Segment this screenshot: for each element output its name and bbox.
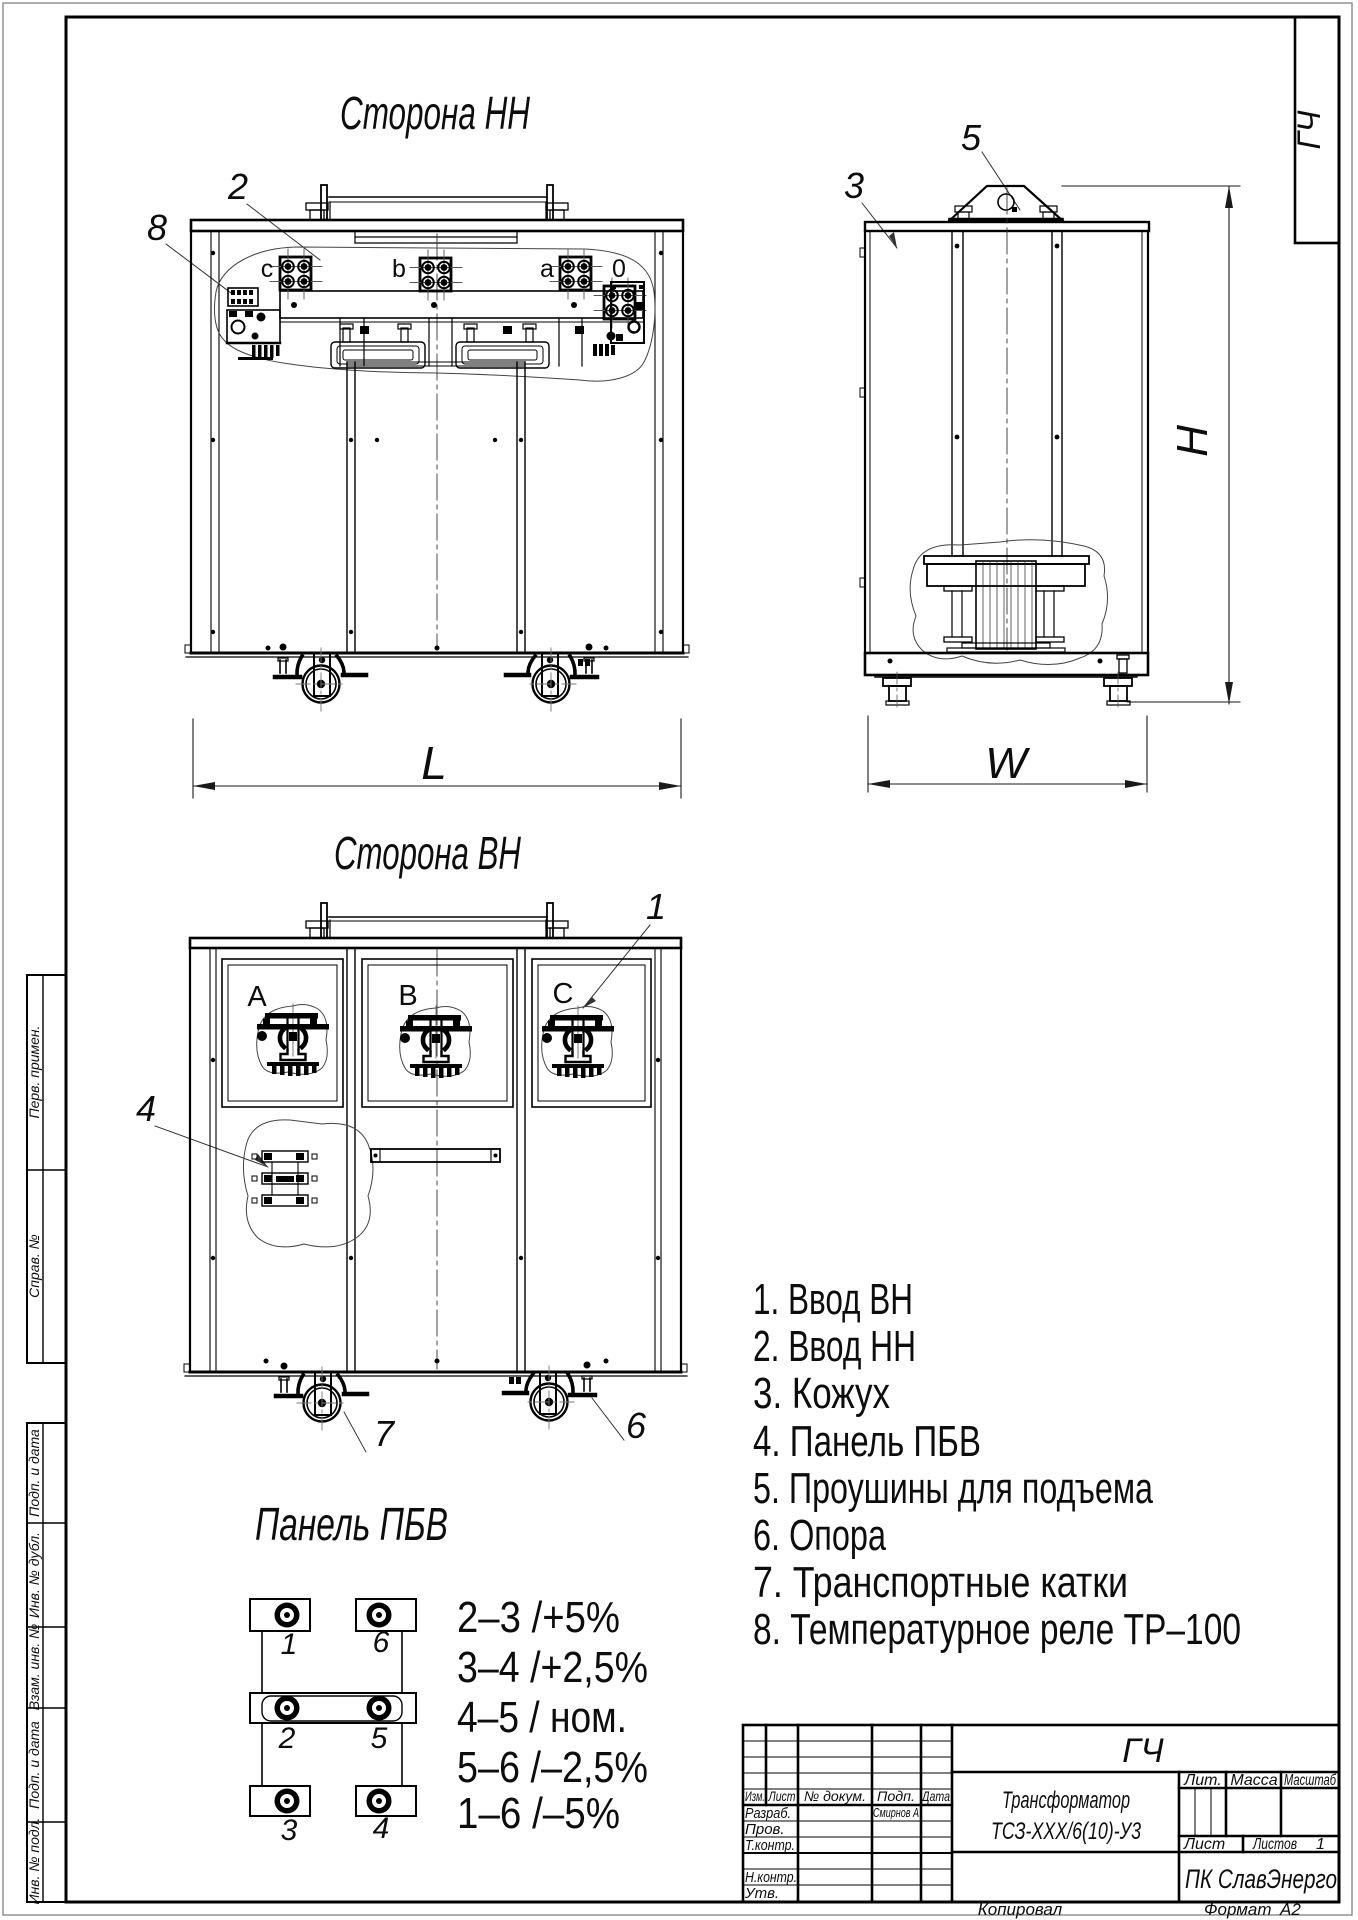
svg-text:Масса: Масса — [1230, 1772, 1277, 1789]
svg-text:Подп. и дата: Подп. и дата — [26, 1429, 42, 1517]
svg-text:Сторона НН: Сторона НН — [340, 87, 531, 139]
svg-text:3: 3 — [844, 165, 864, 206]
svg-text:Копировал: Копировал — [978, 1900, 1063, 1919]
svg-text:1: 1 — [281, 1628, 298, 1661]
svg-text:7. Транспортные катки: 7. Транспортные катки — [753, 1558, 1128, 1607]
svg-text:L: L — [421, 737, 447, 789]
svg-text:2–3 /+5%: 2–3 /+5% — [457, 1593, 620, 1642]
svg-text:2: 2 — [278, 1722, 296, 1755]
svg-text:2. Ввод НН: 2. Ввод НН — [753, 1322, 916, 1371]
svg-text:Пров.: Пров. — [745, 1821, 785, 1838]
svg-text:3. Кожух: 3. Кожух — [753, 1369, 890, 1418]
svg-text:Утв.: Утв. — [744, 1885, 779, 1902]
svg-text:A: A — [247, 981, 267, 1013]
svg-text:Т.контр.: Т.контр. — [745, 1837, 795, 1854]
svg-text:4–5 / ном.: 4–5 / ном. — [457, 1693, 627, 1742]
svg-text:Инв. № подл.: Инв. № подл. — [26, 1818, 42, 1905]
svg-text:Инв. № дубл.: Инв. № дубл. — [26, 1532, 42, 1618]
svg-text:Лист: Лист — [768, 1788, 796, 1804]
svg-text:5–6 /–2,5%: 5–6 /–2,5% — [457, 1743, 648, 1792]
svg-text:Перв. примен.: Перв. примен. — [26, 1025, 42, 1118]
svg-text:Формат: Формат — [1204, 1900, 1272, 1919]
svg-text:1–6 /–5%: 1–6 /–5% — [457, 1789, 620, 1838]
svg-text:c: c — [261, 255, 274, 283]
svg-text:B: B — [398, 980, 417, 1012]
svg-text:2: 2 — [227, 166, 248, 207]
svg-text:b: b — [392, 255, 406, 283]
svg-text:1. Ввод ВН: 1. Ввод ВН — [753, 1275, 913, 1324]
svg-text:Сторона ВН: Сторона ВН — [334, 827, 522, 879]
svg-text:8: 8 — [147, 207, 167, 248]
svg-text:Масштаб: Масштаб — [1284, 1772, 1337, 1789]
svg-text:ГЧ: ГЧ — [1122, 1732, 1163, 1770]
svg-text:1: 1 — [1316, 1836, 1325, 1853]
svg-text:4. Панель ПБВ: 4. Панель ПБВ — [753, 1417, 981, 1466]
svg-text:4: 4 — [136, 1088, 156, 1129]
svg-text:6: 6 — [626, 1405, 647, 1446]
svg-text:ТСЗ-ХХХ/6(10)-У3: ТСЗ-ХХХ/6(10)-У3 — [991, 1818, 1141, 1845]
svg-text:Изм.: Изм. — [745, 1788, 765, 1804]
svg-text:3–4 /+2,5%: 3–4 /+2,5% — [457, 1643, 648, 1692]
svg-text:№ докум.: № докум. — [804, 1788, 866, 1804]
svg-text:8. Температурное реле ТР–100: 8. Температурное реле ТР–100 — [753, 1605, 1241, 1654]
svg-text:Н.контр.: Н.контр. — [745, 1869, 797, 1886]
svg-text:C: C — [553, 978, 574, 1010]
svg-text:0: 0 — [612, 255, 626, 283]
svg-text:3: 3 — [281, 1814, 298, 1847]
svg-text:a: a — [540, 255, 554, 283]
svg-text:ПК СлавЭнерго: ПК СлавЭнерго — [1185, 1864, 1337, 1894]
svg-text:ГЧ: ГЧ — [1291, 110, 1327, 149]
svg-text:Панель ПБВ: Панель ПБВ — [255, 1498, 448, 1550]
svg-text:H: H — [1168, 425, 1217, 457]
svg-text:Подп.: Подп. — [877, 1788, 915, 1804]
svg-text:Трансформатор: Трансформатор — [1002, 1787, 1130, 1814]
svg-text:5. Проушины для подъема: 5. Проушины для подъема — [753, 1464, 1153, 1513]
svg-text:5: 5 — [371, 1722, 388, 1755]
svg-text:4: 4 — [373, 1812, 390, 1845]
svg-text:Справ. №: Справ. № — [26, 1234, 42, 1298]
svg-text:5: 5 — [961, 117, 982, 158]
svg-text:Лит.: Лит. — [1183, 1772, 1221, 1789]
svg-text:Подп. и дата: Подп. и дата — [26, 1721, 42, 1809]
svg-text:7: 7 — [374, 1413, 396, 1454]
svg-text:W: W — [985, 739, 1030, 788]
svg-text:Разраб.: Разраб. — [745, 1805, 791, 1822]
svg-text:Листов: Листов — [1252, 1836, 1297, 1853]
svg-text:Лист: Лист — [1183, 1836, 1225, 1853]
svg-text:6. Опора: 6. Опора — [753, 1511, 886, 1560]
svg-text:1: 1 — [646, 886, 666, 927]
svg-text:Смирнов А: Смирнов А — [873, 1805, 919, 1820]
svg-text:Взам. инв. №: Взам. инв. № — [26, 1624, 42, 1711]
svg-text:А2: А2 — [1279, 1900, 1301, 1919]
svg-text:Дата: Дата — [920, 1788, 950, 1804]
svg-text:6: 6 — [373, 1626, 390, 1659]
